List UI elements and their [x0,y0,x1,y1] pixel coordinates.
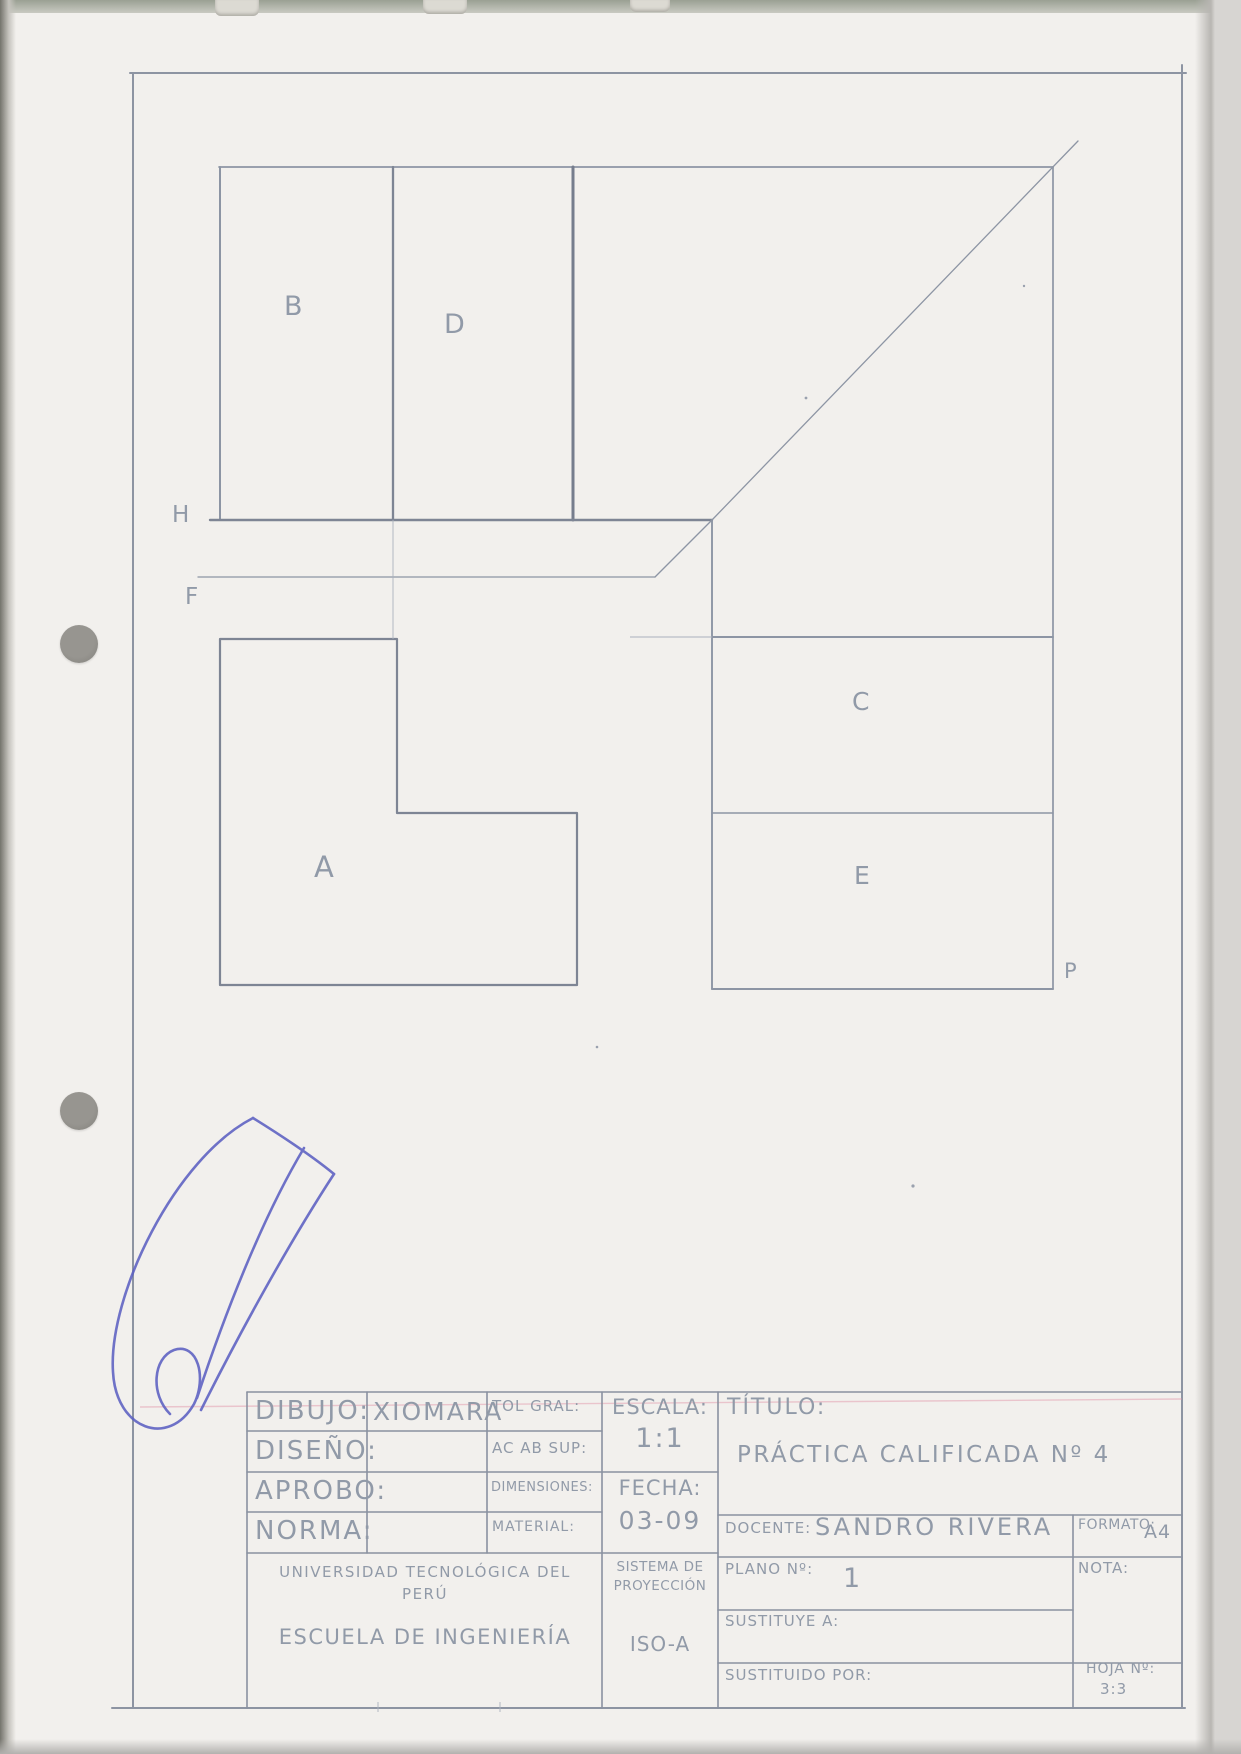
dibujo-value: XIOMARA [373,1398,503,1425]
aprobo-label: APROBO: [255,1477,387,1505]
docente-label: DOCENTE: [725,1520,811,1536]
docente-value: SANDRO RIVERA [815,1515,1053,1541]
escuela-text: ESCUELA DE INGENIERÍA [252,1626,598,1649]
titulo-value: PRÁCTICA CALIFICADA Nº 4 [737,1443,1111,1468]
hole-punch-top [60,625,98,663]
sistema-proyeccion-label: SISTEMA DE PROYECCIÓN [604,1558,716,1596]
view-label-d: D [444,310,465,339]
plano-label: PLANO Nº: [725,1561,813,1577]
nota-label: NOTA: [1078,1560,1129,1576]
pencil-specks [596,285,1025,1188]
diseno-label: DISEÑO: [255,1437,378,1465]
escala-value: 1:1 [602,1424,718,1453]
norma-label: NORMA: [255,1517,374,1545]
dimensiones-label: DIMENSIONES: [491,1481,593,1495]
plane-label-h: H [172,503,189,528]
hoja-value: 3:3 [1100,1681,1127,1697]
torn-tab [215,0,259,16]
formato-value: A4 [1144,1522,1171,1543]
fecha-label: FECHA: [602,1477,718,1500]
torn-tab [630,0,670,12]
torn-tab [423,0,467,14]
titulo-label: TÍTULO: [727,1396,826,1420]
dibujo-label: DIBUJO: [255,1397,370,1425]
plano-value: 1 [843,1564,860,1593]
fecha-value: 03-09 [602,1507,718,1534]
material-label: MATERIAL: [492,1520,575,1535]
signature-ink [113,1118,334,1429]
view-label-e: E [854,862,870,889]
sistema-proyeccion-value: ISO-A [604,1634,716,1656]
hoja-label: HOJA Nº: [1086,1662,1155,1677]
sustituye-label: SUSTITUYE A: [725,1613,839,1629]
paper-edge-bottom [0,1739,1241,1754]
acab-sup-label: AC AB SUP: [492,1440,587,1456]
escala-label: ESCALA: [602,1396,718,1419]
view-label-a: A [314,852,334,883]
scanned-drawing-sheet: B D H F A C E P DIBUJO: XIOMARA DISEÑO: … [0,0,1241,1754]
sustituido-label: SUSTITUIDO POR: [725,1667,872,1683]
plane-label-p: P [1064,960,1077,983]
view-label-c: C [852,688,869,715]
universidad-text: UNIVERSIDAD TECNOLÓGICA DEL PERÚ [262,1562,588,1606]
view-label-b: B [284,292,303,321]
scan-edge-left [0,0,16,1754]
tol-gral-label: TOL GRAL: [492,1398,580,1414]
scan-edge-top [0,0,1241,13]
plane-label-f: F [185,585,198,610]
paper-edge-right [1195,0,1241,1754]
hole-punch-bottom [60,1092,98,1130]
